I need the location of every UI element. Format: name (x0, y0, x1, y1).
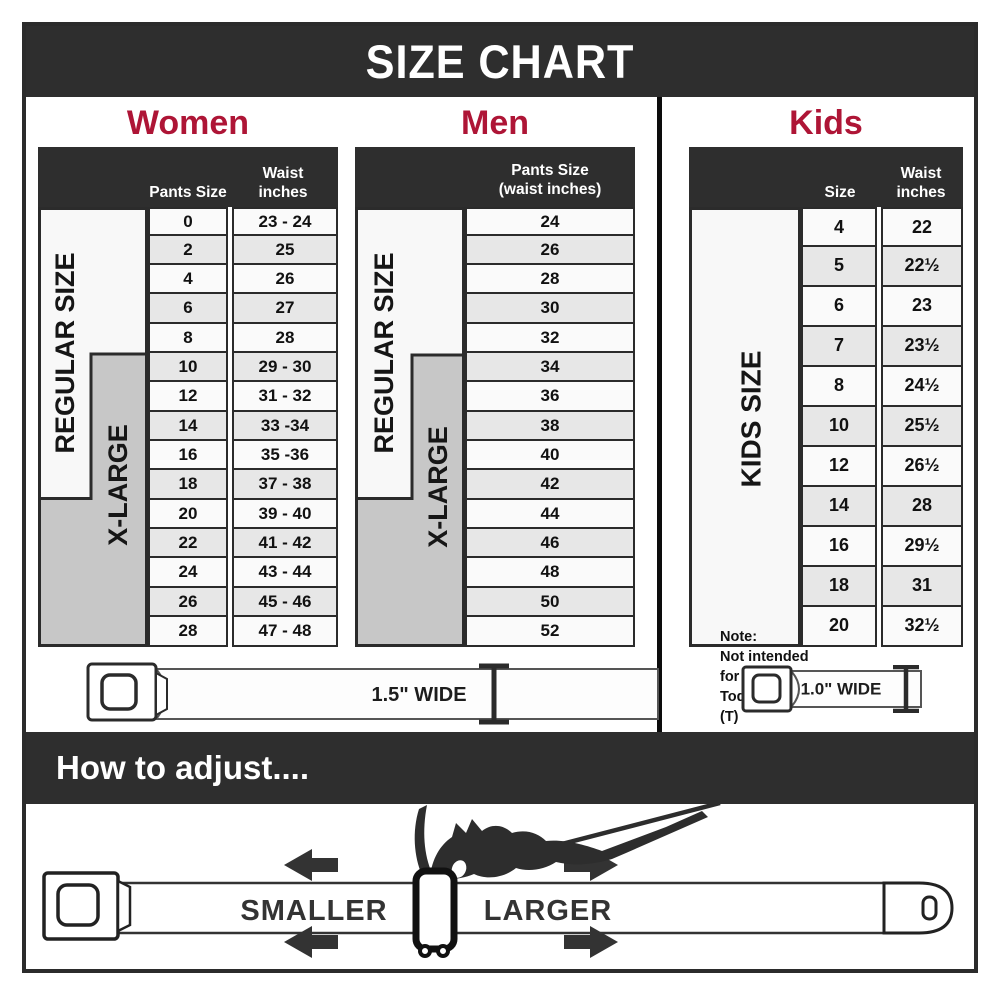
pants-size-cell: 30 (465, 292, 635, 324)
adjust-heading: How to adjust.... (56, 749, 309, 787)
women-regular-size-label: REGULAR SIZE (50, 252, 80, 453)
table-row: 30 (465, 295, 635, 324)
table-row: 18 31 (801, 567, 963, 607)
pants-size-cell: 28 (148, 615, 228, 647)
table-row: 14 33 -34 (148, 412, 338, 441)
table-row: 4 26 (148, 266, 338, 295)
men-size-range-labels: REGULAR SIZE X-LARGE (355, 207, 465, 647)
pants-size-cell: 52 (465, 615, 635, 647)
waist-cell: 31 - 32 (232, 380, 338, 412)
size-cell: 14 (801, 485, 877, 528)
table-row: 10 25½ (801, 407, 963, 447)
waist-cell: 29 - 30 (232, 351, 338, 383)
kids-heading: Kids (689, 103, 963, 143)
men-table-header: Pants Size (waist inches) (355, 147, 635, 207)
waist-cell: 39 - 40 (232, 498, 338, 530)
waist-cell: 45 - 46 (232, 586, 338, 618)
table-row: 0 23 - 24 (148, 207, 338, 236)
waist-cell: 27 (232, 292, 338, 324)
table-row: 26 45 - 46 (148, 588, 338, 617)
waist-cell: 23 - 24 (232, 207, 338, 236)
pants-size-cell: 16 (148, 439, 228, 471)
pants-size-cell: 38 (465, 410, 635, 442)
kids-belt-width-label: 1.0" WIDE (801, 680, 882, 699)
size-cell: 7 (801, 325, 877, 368)
waist-cell: 33 -34 (232, 410, 338, 442)
adjust-bar: How to adjust.... (26, 732, 974, 804)
waist-cell: 32½ (881, 605, 963, 648)
size-cell: 8 (801, 365, 877, 408)
pants-size-cell: 40 (465, 439, 635, 471)
main-area: Women Men Pants Size Waist inches RE (26, 97, 974, 732)
men-heading: Men (355, 103, 635, 143)
smaller-label: SMALLER (240, 895, 387, 927)
table-row: 24 (465, 207, 635, 236)
kids-rows: 4 22 5 22½ 6 23 7 23½ 8 (801, 207, 963, 647)
pants-size-cell: 2 (148, 234, 228, 266)
size-cell: 12 (801, 445, 877, 488)
pants-size-cell: 32 (465, 322, 635, 354)
table-row: 5 22½ (801, 247, 963, 287)
pants-size-cell: 4 (148, 263, 228, 295)
larger-label: LARGER (484, 895, 612, 927)
kids-col-size: Size (801, 184, 879, 202)
pants-size-cell: 48 (465, 556, 635, 588)
waist-cell: 24½ (881, 365, 963, 408)
table-row: 52 (465, 618, 635, 647)
table-row: 46 (465, 530, 635, 559)
arrow-left-icon (284, 849, 338, 881)
belt-tip-icon (884, 883, 952, 933)
size-cell: 6 (801, 285, 877, 328)
pants-size-cell: 10 (148, 351, 228, 383)
waist-cell: 23½ (881, 325, 963, 368)
kids-size-label: KIDS SIZE (736, 351, 767, 488)
table-row: 36 (465, 383, 635, 412)
pants-size-cell: 26 (465, 234, 635, 266)
table-row: 6 23 (801, 287, 963, 327)
table-row: 8 24½ (801, 367, 963, 407)
pants-size-cell: 34 (465, 351, 635, 383)
table-row: 24 43 - 44 (148, 559, 338, 588)
women-xlarge-label: X-LARGE (103, 424, 133, 546)
women-col-size: Pants Size (148, 184, 228, 202)
waist-cell: 26½ (881, 445, 963, 488)
adjust-diagram: SMALLER LARGER (26, 804, 974, 969)
women-col-waist: Waist inches (228, 165, 338, 202)
men-regular-size-label: REGULAR SIZE (369, 252, 399, 453)
pants-size-cell: 20 (148, 498, 228, 530)
pants-size-cell: 26 (148, 586, 228, 618)
adult-belt-width-label: 1.5" WIDE (371, 684, 466, 706)
pants-size-cell: 28 (465, 263, 635, 295)
size-cell: 4 (801, 207, 877, 247)
table-row: 12 31 - 32 (148, 383, 338, 412)
table-row: 44 (465, 500, 635, 529)
adult-belt-graphic: 1.5" WIDE (61, 662, 659, 726)
pants-size-cell: 22 (148, 527, 228, 559)
pants-size-cell: 14 (148, 410, 228, 442)
pants-size-cell: 42 (465, 468, 635, 500)
table-row: 6 27 (148, 295, 338, 324)
waist-cell: 29½ (881, 525, 963, 568)
waist-cell: 47 - 48 (232, 615, 338, 647)
size-cell: 16 (801, 525, 877, 568)
title-bar: SIZE CHART (26, 26, 974, 97)
table-row: 40 (465, 442, 635, 471)
table-row: 10 29 - 30 (148, 354, 338, 383)
waist-cell: 37 - 38 (232, 468, 338, 500)
table-row: 34 (465, 354, 635, 383)
table-row: 14 28 (801, 487, 963, 527)
slider-icon (416, 871, 454, 956)
table-row: 4 22 (801, 207, 963, 247)
page-title: SIZE CHART (366, 34, 635, 89)
women-table-header: Pants Size Waist inches (38, 147, 338, 207)
pants-size-cell: 46 (465, 527, 635, 559)
kids-table: Size Waist inches KIDS SIZE 4 22 (689, 147, 963, 647)
waist-cell: 28 (881, 485, 963, 528)
adjust-illustration: SMALLER LARGER (26, 804, 974, 969)
table-row: 38 (465, 412, 635, 441)
seatbelt-buckle-icon (743, 667, 791, 711)
waist-cell: 31 (881, 565, 963, 608)
table-row: 26 (465, 236, 635, 265)
seatbelt-buckle-icon (88, 664, 167, 720)
women-heading: Women (38, 103, 338, 143)
waist-cell: 26 (232, 263, 338, 295)
waist-cell: 22½ (881, 245, 963, 288)
pants-size-cell: 36 (465, 380, 635, 412)
seatbelt-buckle-icon (44, 873, 130, 939)
size-cell: 10 (801, 405, 877, 448)
table-row: 42 (465, 471, 635, 500)
table-row: 18 37 - 38 (148, 471, 338, 500)
size-cell: 5 (801, 245, 877, 288)
men-col-size: Pants Size (waist inches) (465, 162, 635, 199)
size-cell: 18 (801, 565, 877, 608)
men-xlarge-label: X-LARGE (423, 426, 453, 548)
women-size-range-labels: REGULAR SIZE X-LARGE (38, 207, 148, 647)
table-row: 16 35 -36 (148, 442, 338, 471)
pants-size-cell: 24 (465, 207, 635, 236)
pants-size-cell: 12 (148, 380, 228, 412)
pants-size-cell: 8 (148, 322, 228, 354)
waist-cell: 23 (881, 285, 963, 328)
waist-cell: 25½ (881, 405, 963, 448)
women-rows: 0 23 - 24 2 25 4 26 6 27 8 (148, 207, 338, 647)
waist-cell: 43 - 44 (232, 556, 338, 588)
kids-col-waist: Waist inches (879, 165, 963, 202)
chart-frame: SIZE CHART Women Men Pants Size Waist in… (22, 22, 978, 973)
table-row: 7 23½ (801, 327, 963, 367)
kids-table-header: Size Waist inches (689, 147, 963, 207)
table-row: 20 39 - 40 (148, 500, 338, 529)
pants-size-cell: 24 (148, 556, 228, 588)
table-row: 2 25 (148, 236, 338, 265)
adult-pane: Women Men Pants Size Waist inches RE (26, 97, 657, 732)
kids-pane: Kids Size Waist inches KIDS SIZE (662, 97, 974, 732)
men-table: Pants Size (waist inches) REGULAR SIZE X… (355, 147, 635, 647)
waist-cell: 25 (232, 234, 338, 266)
kids-belt-graphic: 1.0" WIDE (717, 665, 937, 713)
waist-cell: 41 - 42 (232, 527, 338, 559)
waist-cell: 22 (881, 207, 963, 247)
women-table: Pants Size Waist inches REGULAR SIZE X-L… (38, 147, 338, 647)
table-row: 8 28 (148, 324, 338, 353)
pants-size-cell: 44 (465, 498, 635, 530)
table-row: 50 (465, 588, 635, 617)
pants-size-cell: 18 (148, 468, 228, 500)
table-row: 32 (465, 324, 635, 353)
kids-size-range-labels: KIDS SIZE (689, 207, 801, 647)
table-row: 16 29½ (801, 527, 963, 567)
pants-size-cell: 50 (465, 586, 635, 618)
table-row: 28 47 - 48 (148, 618, 338, 647)
waist-cell: 28 (232, 322, 338, 354)
men-rows: 24 26 28 30 32 34 36 (465, 207, 635, 647)
waist-cell: 35 -36 (232, 439, 338, 471)
table-row: 22 41 - 42 (148, 530, 338, 559)
table-row: 28 (465, 266, 635, 295)
size-chart-page: SIZE CHART Women Men Pants Size Waist in… (0, 0, 1000, 1000)
table-row: 48 (465, 559, 635, 588)
pants-size-cell: 6 (148, 292, 228, 324)
table-row: 12 26½ (801, 447, 963, 487)
pants-size-cell: 0 (148, 207, 228, 236)
